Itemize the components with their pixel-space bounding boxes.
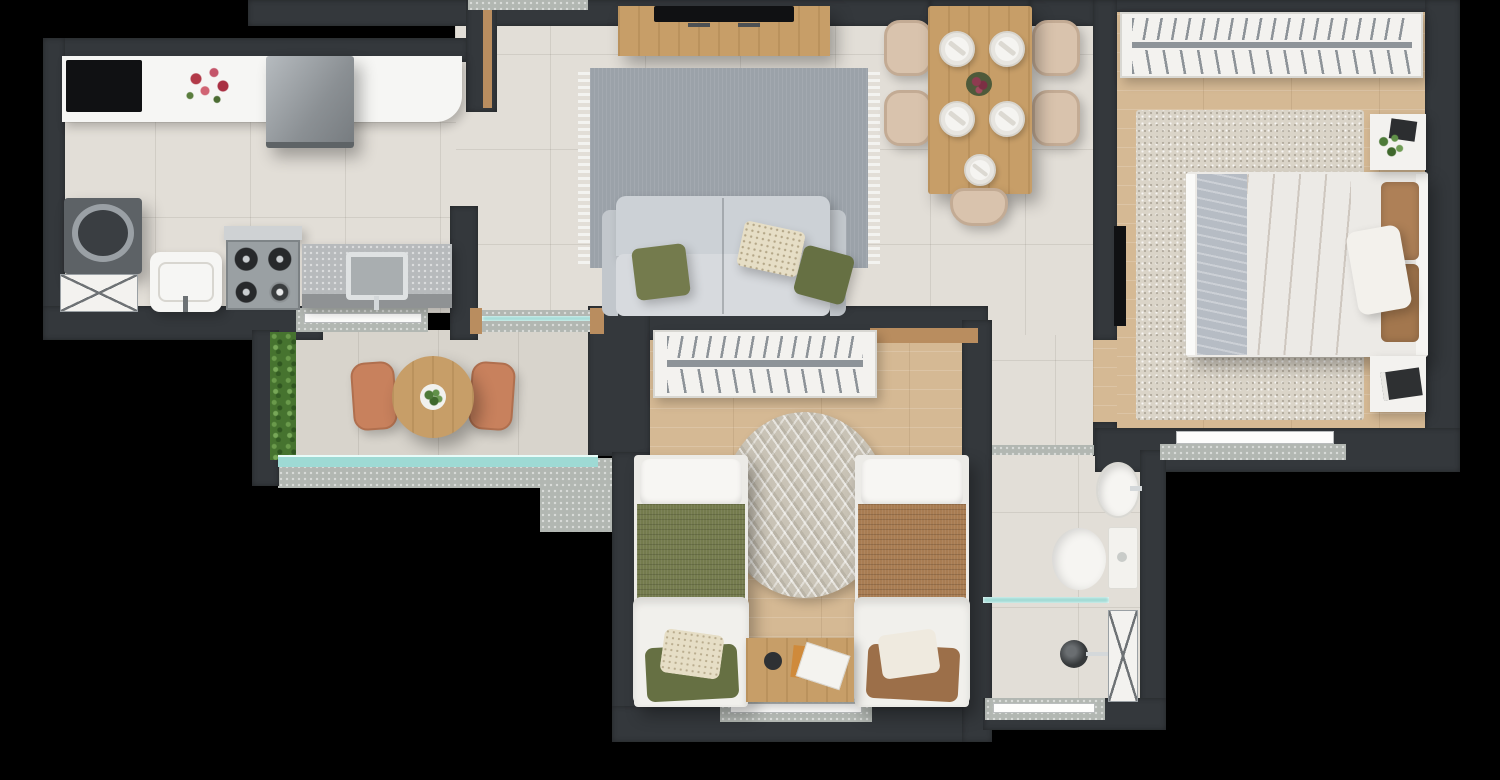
rug-fringe-right xyxy=(868,72,880,264)
washing-machine-lid xyxy=(72,204,134,262)
double-bed-rail-left xyxy=(1186,174,1195,355)
double-bed-gray-throw xyxy=(1197,174,1247,355)
bedroom-wall-tv xyxy=(1114,226,1126,326)
kitchen-faucet xyxy=(374,296,379,310)
shower-glass-screen xyxy=(983,597,1109,603)
balcony-door-frame-left xyxy=(470,308,482,334)
twin-bookshelf-books-top xyxy=(667,336,863,358)
top-wall-bedroom xyxy=(1095,0,1460,12)
hedge-planter xyxy=(270,332,296,460)
bathroom-window xyxy=(993,703,1095,713)
twin-bed-right-pillow xyxy=(861,459,963,507)
twin-bookshelf-books-bottom xyxy=(667,369,863,393)
toilet-flush-button xyxy=(1117,552,1127,562)
twin-bed-right-blanket xyxy=(858,504,966,600)
twin-bed-left-blanket xyxy=(637,504,745,600)
wardrobe-hangers-bottom xyxy=(1132,50,1412,74)
place-setting-1 xyxy=(939,31,975,67)
place-setting-2 xyxy=(989,31,1025,67)
dining-chair-right-2 xyxy=(1032,90,1080,146)
entry-threshold xyxy=(468,0,588,10)
service-shaft xyxy=(1108,610,1138,702)
cooktop xyxy=(66,60,142,112)
flower-vase xyxy=(178,62,238,110)
bedroom-right-wall xyxy=(1425,0,1460,472)
bedroom-window-sill xyxy=(1160,444,1346,460)
dining-chair-left-1 xyxy=(884,20,932,76)
shower-head xyxy=(1060,640,1088,668)
laundry-cabinet xyxy=(60,274,138,312)
sofa-pillow-olive-left xyxy=(631,243,691,301)
dining-centerpiece-flowers xyxy=(966,72,992,96)
bathroom-door-threshold xyxy=(992,445,1094,455)
balcony-sliding-door-glass xyxy=(482,316,596,321)
balcony-slab-corner xyxy=(540,488,620,532)
kitchen-sink xyxy=(346,252,408,300)
bathroom-sink-faucet xyxy=(1130,486,1142,491)
double-bedroom-doorway-floor xyxy=(1093,337,1117,425)
twin-bed-left-deco-pillow xyxy=(659,628,725,680)
laundry-faucet xyxy=(183,296,188,312)
twin-door-leaf xyxy=(870,328,978,343)
floor-plan-canvas xyxy=(0,0,1500,780)
place-setting-4 xyxy=(989,101,1025,137)
gas-stove xyxy=(226,240,300,310)
place-setting-5 xyxy=(964,154,996,186)
wardrobe-hangers-top xyxy=(1132,18,1412,40)
sofa-cushion-split xyxy=(722,198,724,314)
dining-chair-right-1 xyxy=(1032,20,1080,76)
balcony-table-plant xyxy=(423,387,443,407)
nightstand-bottom-books xyxy=(1380,367,1423,400)
bathroom-right-wall xyxy=(1140,450,1166,727)
kitchen-pass-window xyxy=(304,313,422,323)
twin-window xyxy=(730,703,862,713)
dining-chair-bottom xyxy=(950,188,1008,226)
tv-stand-left xyxy=(688,23,710,27)
rug-fringe-left xyxy=(578,72,590,264)
nightstand-top-plant xyxy=(1374,128,1406,162)
entry-door-frame xyxy=(483,8,492,108)
balcony-door-track xyxy=(478,310,600,332)
stove-control-panel xyxy=(224,226,302,240)
refrigerator xyxy=(266,56,354,148)
balcony-chair-right xyxy=(468,361,517,432)
shower-arm xyxy=(1086,652,1108,656)
wardrobe-rail xyxy=(1132,42,1412,48)
twin-bed-right-deco-pillow xyxy=(877,628,941,680)
place-setting-3 xyxy=(939,101,975,137)
tv xyxy=(654,6,794,22)
bedroom-window xyxy=(1176,431,1334,444)
twin-bookshelf-bar xyxy=(667,360,863,367)
balcony-door-frame-right xyxy=(590,308,604,334)
entry-divider-wall xyxy=(466,0,497,112)
twin-bed-left-pillow xyxy=(640,459,742,507)
double-bed-brown-duvet xyxy=(1247,174,1351,355)
toilet-bowl xyxy=(1052,528,1106,590)
dining-chair-left-2 xyxy=(884,90,932,146)
twin-side-table-vase xyxy=(764,652,782,670)
tv-stand-right xyxy=(738,23,760,27)
balcony-glass-railing xyxy=(278,455,598,467)
